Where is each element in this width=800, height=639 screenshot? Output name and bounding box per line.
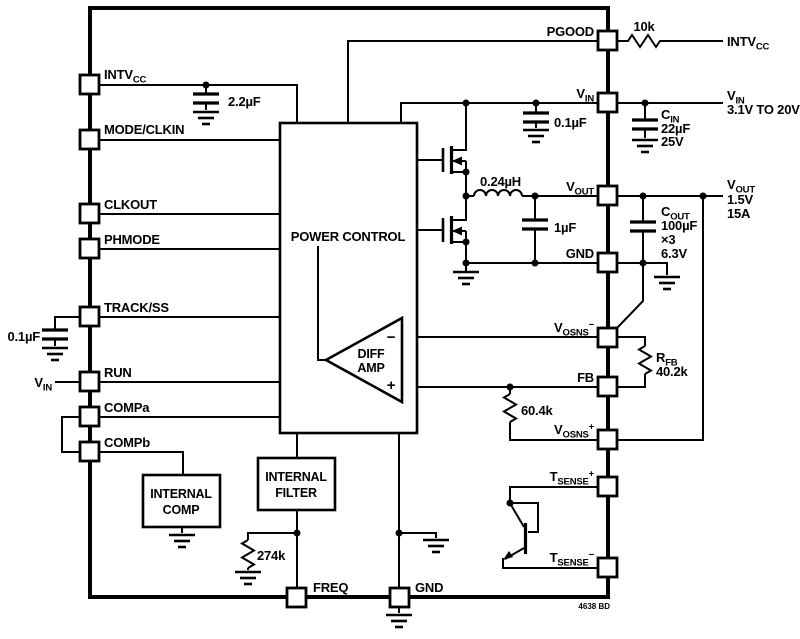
cout-rating: 6.3V: [661, 246, 687, 261]
pin-mode-clkin-label: MODE/CLKIN: [104, 122, 184, 137]
pin-compb-label: COMPb: [104, 435, 150, 450]
power-control-label: POWER CONTROL: [291, 229, 406, 244]
diff-amp-label-2: AMP: [357, 361, 384, 375]
footer-code: 4638 BD: [578, 602, 610, 611]
pin-phmode-label: PHMODE: [104, 232, 160, 247]
internal-comp-label-1: INTERNAL: [150, 487, 212, 501]
diff-amp-plus-sign: +: [387, 377, 396, 394]
inductor-value: 0.24µH: [480, 174, 521, 189]
pin-gnd-label: GND: [566, 246, 594, 261]
pin-compa-label: COMPa: [104, 400, 150, 415]
diff-amp-minus-sign: −: [387, 329, 396, 346]
resistor-60.4k-value: 60.4k: [521, 403, 554, 418]
diff-amp-label-1: DIFF: [358, 347, 386, 361]
cin-rating: 25V: [661, 134, 684, 149]
pin-gnd-bottom-label: GND: [415, 580, 443, 595]
pin-track-ss-label: TRACK/SS: [104, 300, 169, 315]
internal-filter-label-2: FILTER: [275, 486, 317, 500]
cap-2.2uf-value: 2.2µF: [228, 94, 261, 109]
resistor-274k-value: 274k: [257, 548, 286, 563]
vin-rail-range: 3.1V TO 20V: [727, 102, 800, 117]
block-diagram: POWER CONTROL DIFF AMP − + 0.24µH: [0, 0, 800, 639]
pin-run-label: RUN: [104, 365, 132, 380]
vout-rail-amps: 15A: [727, 206, 751, 221]
internal-filter-label-1: INTERNAL: [265, 470, 327, 484]
pin-fb-label: FB: [577, 370, 594, 385]
pin-pgood-label: PGOOD: [547, 24, 594, 39]
pin-clkout-label: CLKOUT: [104, 197, 157, 212]
cap-1uf-value: 1µF: [554, 220, 576, 235]
cout-mult: ×3: [661, 232, 675, 247]
cap-0.1uf-trackss-value: 0.1µF: [7, 329, 40, 344]
internal-comp-label-2: COMP: [163, 503, 200, 517]
cout-value: 100µF: [661, 218, 697, 233]
internal-filter-block: INTERNAL FILTER: [258, 458, 335, 510]
resistor-10k-value: 10k: [633, 19, 655, 34]
schematic-canvas: POWER CONTROL DIFF AMP − + 0.24µH: [0, 0, 800, 639]
rfb-value: 40.2k: [656, 364, 689, 379]
vout-rail-volts: 1.5V: [727, 192, 753, 207]
pin-freq-label: FREQ: [313, 580, 348, 595]
cap-0.1uf-vin-value: 0.1µF: [554, 115, 587, 130]
